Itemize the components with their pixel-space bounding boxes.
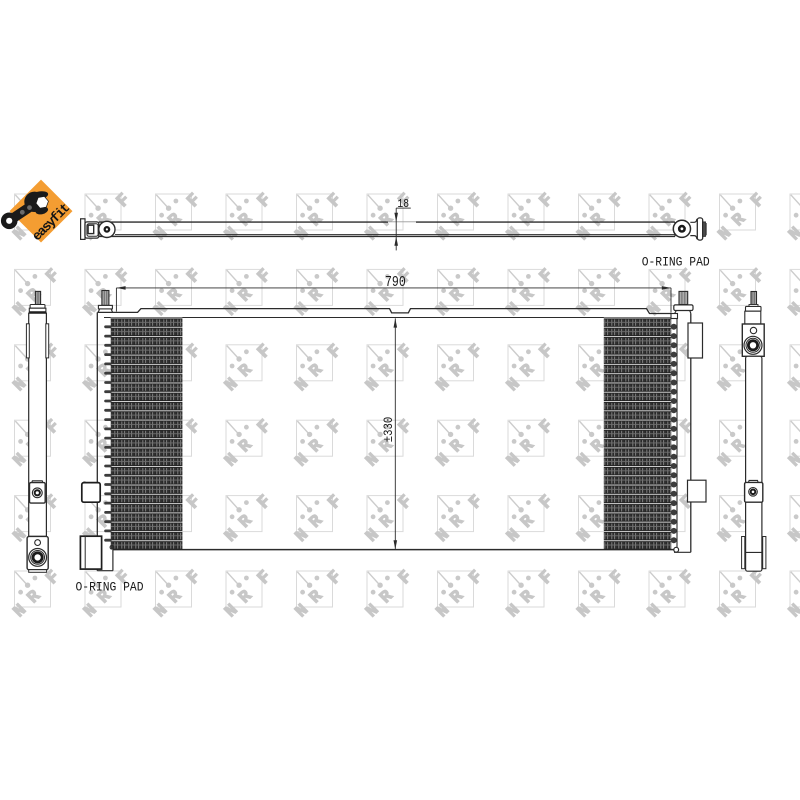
svg-text:O-RING PAD: O-RING PAD xyxy=(642,255,710,269)
svg-text:±330: ±330 xyxy=(381,417,396,442)
svg-text:790: 790 xyxy=(385,275,406,291)
svg-text:O-RING PAD: O-RING PAD xyxy=(76,581,144,595)
svg-text:18: 18 xyxy=(397,198,409,211)
